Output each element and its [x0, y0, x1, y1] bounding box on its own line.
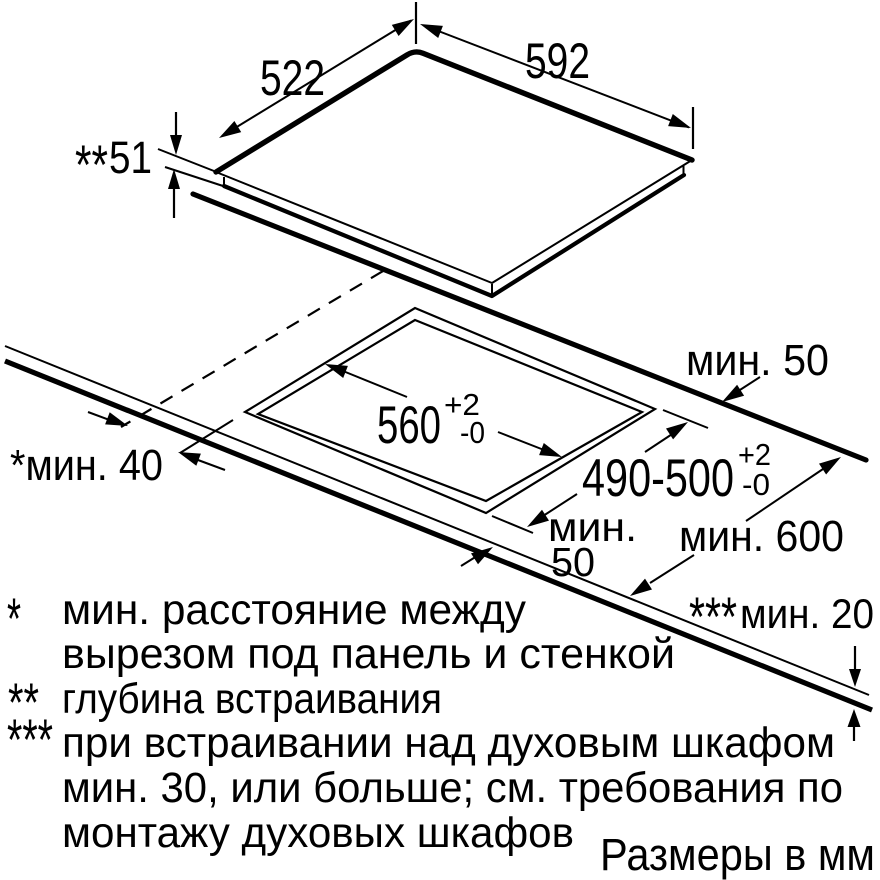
- svg-text:560: 560: [377, 396, 441, 455]
- svg-text:592: 592: [525, 33, 590, 89]
- svg-text:-0: -0: [460, 415, 485, 450]
- svg-text:50: 50: [551, 539, 595, 585]
- svg-text:-0: -0: [742, 467, 770, 502]
- svg-text:мин. 600: мин. 600: [679, 512, 844, 561]
- svg-text:мин. 50: мин. 50: [686, 336, 829, 385]
- svg-text:522: 522: [260, 50, 325, 106]
- svg-text:мин. 30, или больше; см. требо: мин. 30, или больше; см. требования по: [62, 764, 843, 812]
- svg-text:*: *: [7, 587, 21, 652]
- svg-text:490-500: 490-500: [582, 449, 734, 508]
- svg-text:вырезом под панель и стенкой: вырезом под панель и стенкой: [62, 630, 675, 678]
- svg-text:***: ***: [7, 708, 53, 773]
- svg-text:**: **: [75, 133, 108, 196]
- svg-text:глубина встраивания: глубина встраивания: [62, 675, 442, 723]
- svg-text:мин. 20: мин. 20: [740, 590, 874, 637]
- svg-text:51: 51: [109, 132, 152, 183]
- svg-text:Размеры в мм: Размеры в мм: [600, 829, 875, 880]
- svg-text:монтажу духовых шкафов: монтажу духовых шкафов: [62, 809, 574, 857]
- svg-text:при встраивании над духовым шк: при встраивании над духовым шкафом: [62, 719, 835, 767]
- svg-text:*мин. 40: *мин. 40: [10, 441, 163, 490]
- svg-text:***: ***: [689, 585, 737, 648]
- svg-text:мин. расстояние между: мин. расстояние между: [62, 586, 526, 634]
